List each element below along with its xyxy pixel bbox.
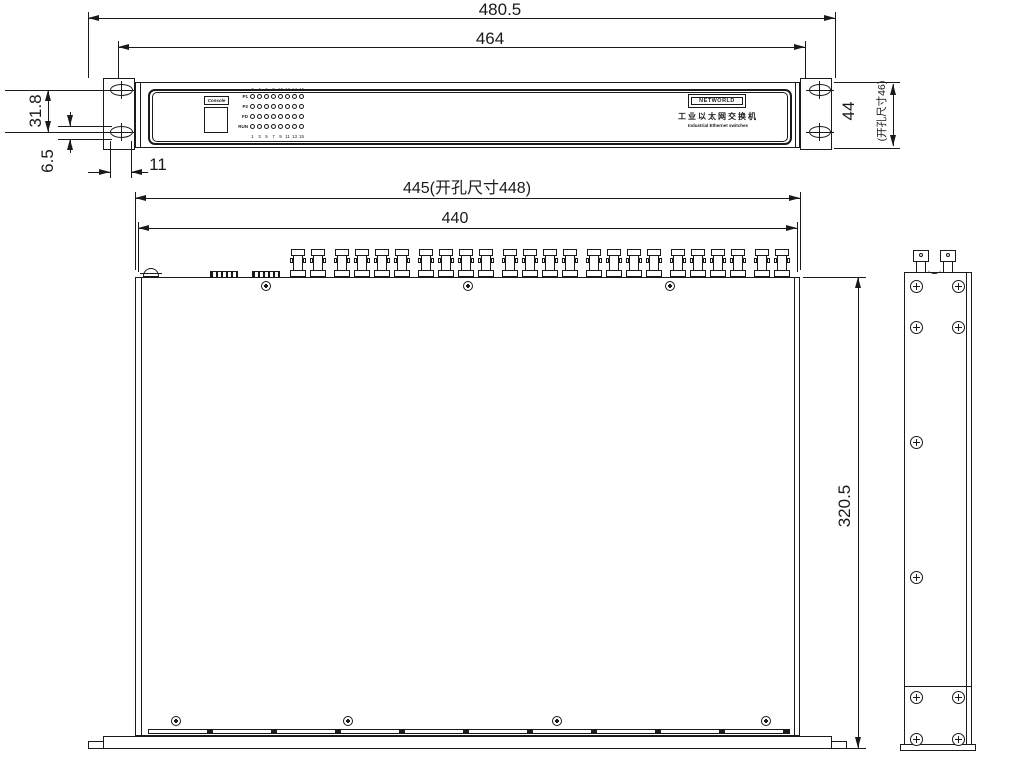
led-indicator: [292, 124, 297, 129]
led-col-number: 16: [297, 88, 306, 93]
fiber-connector-part: [478, 270, 494, 277]
edge-line: [140, 83, 141, 147]
console-port: [204, 107, 228, 133]
fiber-connector-part: [629, 255, 639, 271]
arrow-icon: [88, 15, 99, 21]
screw-icon: [343, 716, 353, 726]
brand-logo-plate: NETWORLD: [688, 94, 746, 108]
fiber-connector-part: [377, 255, 387, 271]
screw-icon: [261, 281, 271, 291]
ext-line: [88, 12, 89, 78]
arrow-icon: [67, 139, 73, 150]
fiber-connector-part: [787, 258, 790, 263]
front-bezel-strip: [103, 736, 832, 749]
dim-line: [135, 198, 800, 199]
fiber-connector-part: [421, 255, 431, 271]
arrow-icon: [824, 15, 835, 21]
dim-line: [118, 47, 805, 48]
fiber-connector-part: [290, 270, 306, 277]
arrow-icon: [794, 44, 805, 50]
led-indicator: [285, 94, 290, 99]
fiber-connector-part: [313, 255, 323, 271]
arrow-icon: [789, 195, 800, 201]
slot-crosshair: [121, 81, 122, 99]
fiber-connector-part: [515, 258, 518, 263]
led-row-label: RUN: [232, 125, 248, 130]
fiber-connector-part: [522, 270, 538, 277]
fiber-connector-part: [310, 270, 326, 277]
screw-icon: [910, 436, 923, 449]
fiber-connector-part: [387, 258, 390, 263]
arrow-icon: [890, 135, 896, 146]
fiber-connector-row: [291, 249, 796, 277]
slot-crosshair: [806, 90, 834, 91]
fiber-connector-part: [589, 255, 599, 271]
console-label: Console: [205, 99, 228, 104]
led-indicator: [299, 94, 304, 99]
fiber-connector-part: [599, 258, 602, 263]
fiber-connector-part: [683, 258, 686, 263]
led-indicator: [250, 94, 255, 99]
fiber-connector-part: [703, 258, 706, 263]
led-indicator: [250, 104, 255, 109]
lug-shank: [943, 261, 953, 273]
screw-icon: [910, 691, 923, 704]
arrow-icon: [786, 225, 797, 231]
brand-logo: NETWORLD: [689, 99, 745, 105]
ext-line: [835, 12, 836, 78]
bezel-bar: [148, 729, 790, 734]
arrow-icon: [890, 84, 896, 95]
fiber-connector-part: [394, 270, 410, 277]
fiber-connector-part: [670, 270, 686, 277]
lug-wire: [928, 265, 941, 274]
ext-line: [836, 748, 866, 749]
fiber-connector-part: [565, 255, 575, 271]
dim-line: [88, 18, 835, 19]
fiber-connector-part: [693, 255, 703, 271]
fiber-connector-part: [606, 270, 622, 277]
dim-label-slot-width: 11: [138, 156, 178, 173]
fiber-connector-part: [481, 255, 491, 271]
fiber-connector-part: [431, 258, 434, 263]
led-row-label: P1: [232, 95, 248, 100]
fiber-connector-part: [733, 255, 743, 271]
fiber-connector-part: [562, 270, 578, 277]
fiber-connector-part: [710, 270, 726, 277]
dim-label-ear-hole-pitch: 31.8: [26, 81, 46, 141]
fiber-connector-part: [619, 258, 622, 263]
fiber-connector-part: [451, 258, 454, 263]
led-indicator: [278, 124, 283, 129]
led-indicator: [257, 104, 262, 109]
screw-icon: [910, 321, 923, 334]
screw-icon: [761, 716, 771, 726]
led-indicator: [292, 104, 297, 109]
fiber-connector-part: [367, 258, 370, 263]
fiber-connector-part: [357, 255, 367, 271]
dim-label-height-cutout: (开孔尺寸46): [875, 61, 889, 161]
arrow-icon: [138, 225, 149, 231]
led-indicator: [271, 104, 276, 109]
fiber-connector-part: [626, 270, 642, 277]
edge-line: [141, 278, 142, 735]
led-indicator: [278, 114, 283, 119]
fiber-connector-part: [458, 270, 474, 277]
fiber-connector-part: [774, 270, 790, 277]
screw-icon: [552, 716, 562, 726]
fiber-connector-part: [545, 255, 555, 271]
fiber-connector-part: [730, 270, 746, 277]
dim-label-top-width: 445(开孔尺寸448): [327, 181, 607, 197]
screw-icon: [910, 733, 923, 746]
fiber-connector-part: [337, 255, 347, 271]
lug-shank: [916, 261, 926, 273]
fiber-connector-part: [491, 258, 494, 263]
ext-line: [118, 41, 119, 78]
led-matrix: 246810121416P1P2FDRUN13579111315: [232, 88, 310, 140]
fiber-connector-part: [471, 258, 474, 263]
led-indicator: [257, 124, 262, 129]
fiber-connector-part: [646, 270, 662, 277]
led-indicator: [257, 94, 262, 99]
chassis-side-view: [904, 272, 972, 750]
ext-line: [800, 192, 801, 270]
screw-icon: [463, 281, 473, 291]
fiber-connector-part: [659, 258, 662, 263]
edge-line: [795, 83, 796, 147]
led-indicator: [292, 114, 297, 119]
dim-label-top-inner-width: 440: [415, 211, 495, 227]
fiber-connector-part: [323, 258, 326, 263]
fiber-connector-part: [374, 270, 390, 277]
led-indicator: [250, 124, 255, 129]
led-indicator: [271, 114, 276, 119]
fiber-connector-part: [609, 255, 619, 271]
fiber-connector-part: [407, 258, 410, 263]
led-indicator: [285, 124, 290, 129]
led-indicator: [257, 114, 262, 119]
fiber-connector-part: [690, 270, 706, 277]
led-indicator: [278, 104, 283, 109]
dim-label-height: 44: [839, 91, 859, 131]
fiber-connector-part: [575, 258, 578, 263]
led-indicator: [264, 94, 269, 99]
engineering-drawing: 480.5 464 Console 246810121416P1P2FDRUN1…: [0, 0, 1035, 775]
led-indicator: [292, 94, 297, 99]
screw-icon: [910, 571, 923, 584]
fiber-connector-part: [767, 258, 770, 263]
led-indicator: [264, 124, 269, 129]
fiber-connector-part: [777, 255, 787, 271]
screw-icon: [952, 280, 965, 293]
fiber-connector-part: [438, 270, 454, 277]
arrow-icon: [67, 115, 73, 126]
ext-line: [5, 90, 110, 91]
ground-stud-base: [140, 273, 162, 274]
slot-crosshair: [819, 81, 820, 99]
led-col-number: 15: [297, 135, 306, 140]
led-indicator: [299, 114, 304, 119]
led-indicator: [250, 114, 255, 119]
screw-icon: [952, 321, 965, 334]
arrow-icon: [99, 169, 110, 175]
led-indicator: [285, 104, 290, 109]
screw-icon: [665, 281, 675, 291]
led-indicator: [264, 104, 269, 109]
fiber-connector-part: [723, 258, 726, 263]
edge-line: [966, 273, 967, 749]
console-label-plate: Console: [204, 96, 229, 105]
fiber-connector-part: [754, 270, 770, 277]
screw-icon: [952, 733, 965, 746]
chassis-top-view: [135, 277, 800, 736]
screw-icon: [952, 691, 965, 704]
ext-line: [138, 222, 139, 272]
led-indicator: [278, 94, 283, 99]
fiber-connector-part: [535, 258, 538, 263]
fiber-connector-part: [502, 270, 518, 277]
led-row-label: FD: [232, 115, 248, 120]
ext-line: [135, 192, 136, 270]
fiber-connector-part: [461, 255, 471, 271]
arrow-icon: [855, 277, 861, 288]
led-indicator: [271, 124, 276, 129]
fiber-connector-part: [542, 270, 558, 277]
ext-line: [834, 82, 900, 83]
dim-label-overall-width: 480.5: [420, 1, 580, 18]
dim-label-slot-height: 6.5: [38, 133, 58, 189]
fiber-connector-part: [586, 270, 602, 277]
arrow-icon: [855, 737, 861, 748]
edge-line: [904, 686, 972, 687]
rack-ear-foot-left: [88, 741, 104, 749]
ext-line: [797, 222, 798, 272]
screw-icon: [171, 716, 181, 726]
fiber-connector-part: [293, 255, 303, 271]
led-row-label: P2: [232, 105, 248, 110]
led-indicator: [264, 114, 269, 119]
slot-crosshair: [819, 123, 820, 141]
fiber-connector-part: [397, 255, 407, 271]
fiber-connector-part: [441, 255, 451, 271]
lug-hole: [919, 253, 923, 257]
led-indicator: [285, 114, 290, 119]
side-bezel-strip: [900, 744, 976, 751]
fiber-connector-part: [757, 255, 767, 271]
fiber-connector-part: [525, 255, 535, 271]
terminal-block: [210, 271, 238, 278]
arrow-icon: [135, 195, 146, 201]
screw-icon: [910, 280, 923, 293]
fiber-connector-part: [649, 255, 659, 271]
product-name-en: Industrial Ethernet switches: [668, 124, 768, 129]
fiber-connector-part: [334, 270, 350, 277]
ext-line: [834, 148, 900, 149]
slot-crosshair: [121, 123, 122, 141]
fiber-connector-part: [303, 258, 306, 263]
fiber-connector-part: [555, 258, 558, 263]
slot-crosshair: [806, 132, 834, 133]
ext-line: [805, 41, 806, 80]
fiber-connector-part: [418, 270, 434, 277]
fiber-connector-part: [354, 270, 370, 277]
fiber-connector-part: [673, 255, 683, 271]
lug-hole: [946, 253, 950, 257]
fiber-connector-part: [713, 255, 723, 271]
fiber-connector-part: [347, 258, 350, 263]
terminal-block: [252, 271, 280, 278]
led-indicator: [271, 94, 276, 99]
dim-line: [138, 228, 797, 229]
product-name-cn: 工业以太网交换机: [668, 113, 768, 121]
fiber-connector-part: [639, 258, 642, 263]
led-indicator: [299, 104, 304, 109]
led-indicator: [299, 124, 304, 129]
ext-line: [110, 141, 111, 178]
dim-label-mount-width: 464: [430, 30, 550, 47]
dim-label-depth: 320.5: [835, 471, 855, 541]
ext-line: [58, 126, 112, 127]
edge-line: [794, 278, 795, 735]
fiber-connector-part: [505, 255, 515, 271]
fiber-connector-part: [743, 258, 746, 263]
dim-line: [858, 277, 859, 748]
arrow-icon: [118, 44, 129, 50]
